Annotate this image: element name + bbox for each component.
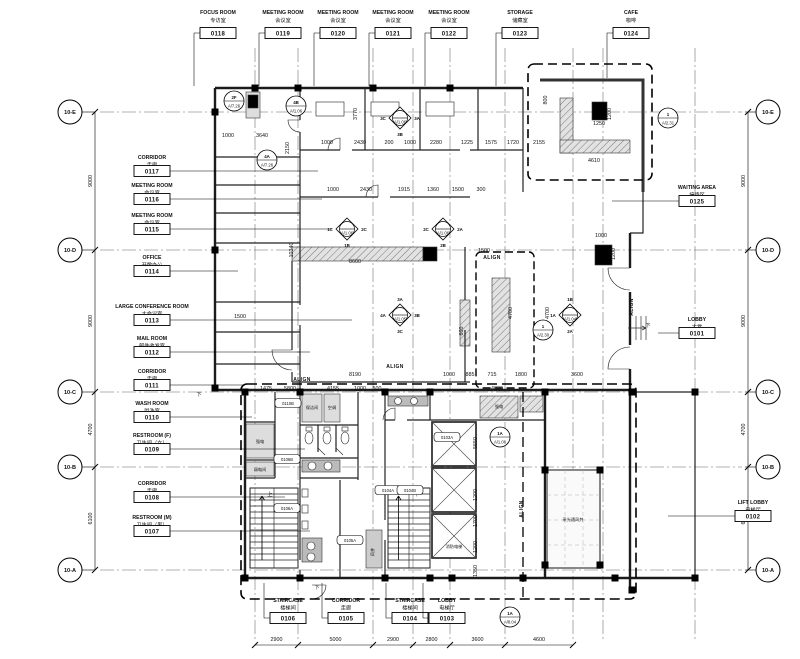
pantry-equipment (248, 95, 258, 108)
room-name-cn: 咖啡 (626, 16, 636, 24)
marker-sheet: A/1.06 (341, 231, 354, 236)
marker-sheet: A/1.06 (494, 440, 507, 445)
leader-line (314, 33, 320, 86)
stair-direction-arrow (260, 496, 265, 560)
leader-line (264, 583, 270, 618)
room-name: LOBBY (688, 317, 707, 323)
room-number: 0102 (746, 515, 761, 521)
dim-label: 800 (543, 96, 549, 105)
room-name: RESTROOM (M) (132, 515, 171, 521)
dim-label: 885 (466, 372, 475, 378)
dim-label: 3640 (256, 133, 268, 139)
room-name: STORAGE (507, 10, 533, 16)
room-number: 0112 (145, 351, 160, 357)
cafe-counter-horizontal (560, 140, 630, 153)
column (542, 389, 549, 396)
dim-label: 9000 (88, 315, 94, 327)
core-room-label: 空调 (328, 404, 336, 411)
down-note: 下 (645, 322, 650, 329)
core-room-label: 采光通风井 (563, 516, 584, 523)
toilet-icon (323, 432, 331, 444)
floor-plan-sheet: 9000900047006100900090004700610029005000… (0, 0, 800, 659)
marker-sheet: A/1.06 (394, 120, 407, 125)
room-number: 0113 (145, 319, 160, 325)
room-name-cn: 楼梯间 (280, 604, 296, 612)
dim-label: 4820 (491, 386, 503, 392)
dim-label: 5800 (284, 386, 296, 392)
room-name: STAIRCASE (273, 598, 303, 604)
room-name: CORRIDOR (138, 155, 166, 161)
room-number: 0124 (624, 32, 639, 38)
align-note: ALIGN (519, 500, 525, 518)
interior-elevation-marker: A/1.062B2C2A (423, 218, 463, 248)
grid-bubble-label: 10-A (64, 568, 76, 574)
room-name-cn: 储藏室 (512, 16, 528, 24)
marker-side-label: 3B (414, 313, 420, 318)
room-name: CORRIDOR (332, 598, 360, 604)
core-room-label: 弱电间 (254, 466, 267, 473)
dim-label: 5000 (330, 637, 342, 643)
door-tag: 0106A (281, 506, 293, 511)
column (520, 575, 527, 582)
dim-label: 1200 (611, 248, 617, 260)
column (427, 389, 434, 396)
room-name: MAIL ROOM (137, 336, 167, 342)
sink-icon (308, 462, 316, 470)
room-number: 0115 (145, 228, 160, 234)
dim-label: 10340 (289, 243, 295, 258)
column (629, 587, 636, 594)
marker-side-label: 3C (397, 329, 403, 334)
door-swing (272, 350, 292, 370)
dim-label: 5650 (473, 437, 479, 449)
dim-label: 1000 (354, 386, 366, 392)
leader-line (425, 33, 431, 86)
room-number: 0121 (386, 32, 401, 38)
room-number: 0123 (513, 32, 528, 38)
column (612, 575, 619, 582)
marker-sheet: A/7.26 (261, 163, 274, 168)
column (542, 467, 549, 474)
room-number: 0117 (145, 170, 160, 176)
align-note: ALIGN (483, 255, 501, 261)
marker-ref: 4B (293, 100, 299, 105)
column (692, 575, 699, 582)
dim-label: 9000 (741, 315, 747, 327)
marker-ref: 4A (264, 154, 270, 159)
section-marker: 2FA/7.26 (224, 91, 244, 111)
room-name: WASH ROOM (135, 401, 168, 407)
column (597, 562, 604, 569)
dim-label: 9000 (741, 175, 747, 187)
section-marker: 1A/2.31 (658, 108, 678, 128)
room-number: 0116 (145, 198, 160, 204)
door-tag: 0104B (404, 488, 416, 493)
meeting-table (316, 102, 344, 116)
dim-label: 1200 (473, 541, 479, 553)
stair-direction-arrow (396, 496, 401, 560)
dim-label: 1500 (452, 187, 464, 193)
room-name-cn: 走廊 (341, 604, 351, 612)
marker-side-label: 2A (457, 227, 463, 232)
marker-side-label: 3B (397, 132, 403, 137)
room-number: 0122 (442, 32, 457, 38)
dim-label: 2900 (271, 637, 283, 643)
dim-label: 500 (373, 386, 382, 392)
grid-bubble-label: 10-C (64, 390, 76, 396)
interior-elevation-marker: A/1.061B1C2C (327, 218, 367, 248)
down-note: 下 (196, 391, 201, 398)
marker-side-label: 1A (550, 313, 556, 318)
marker-side-label: 2C (423, 227, 429, 232)
room-name: CAFE (624, 10, 639, 16)
room-name: MEETING ROOM (428, 10, 469, 16)
structural-grid (100, 48, 742, 640)
room-number: 0107 (145, 530, 160, 536)
dim-label: 715 (488, 372, 497, 378)
dim-label: 1915 (398, 187, 410, 193)
column (597, 467, 604, 474)
meeting-table (426, 102, 454, 116)
leader-line (496, 33, 502, 86)
dim-label: 1350 (473, 565, 479, 577)
marker-sheet: A/1.06 (437, 231, 450, 236)
sink-icon (395, 398, 402, 405)
dim-label: 1575 (485, 140, 497, 146)
marker-ref: 1A (497, 431, 503, 436)
grid-bubble-label: 10-B (762, 465, 774, 471)
room-name-cn: 会议室 (330, 16, 346, 24)
floor-plan-canvas: 9000900047006100900090004700610029005000… (0, 0, 800, 659)
room-name-cn: 专访室 (210, 16, 226, 24)
marker-side-label: 4A (380, 313, 386, 318)
dim-label: 3770 (353, 108, 359, 120)
room-name: WAITING AREA (678, 185, 716, 191)
room-number: 0120 (331, 32, 346, 38)
align-note: ALIGN (293, 377, 311, 383)
room-number: 0106 (281, 617, 296, 623)
dim-label: 2155 (533, 140, 545, 146)
grid-bubble-label: 10-A (762, 568, 774, 574)
dim-label: 9000 (88, 175, 94, 187)
marker-sheet: A/1.04 (564, 317, 577, 322)
room-name: MEETING ROOM (131, 213, 172, 219)
room-name-cn: 楼梯间 (402, 604, 418, 612)
door-swing (608, 268, 630, 290)
dim-label: 1500 (234, 314, 246, 320)
dim-label: 1250 (593, 121, 605, 127)
room-name: MEETING ROOM (317, 10, 358, 16)
section-marker: 1A/2.30 (533, 320, 553, 340)
grid-bubble-label: 10-D (762, 248, 774, 254)
dim-label: 3600 (571, 372, 583, 378)
marker-sheet: A/2.30 (537, 333, 550, 338)
room-name: OFFICE (142, 255, 162, 261)
room-name: RESTROOM (F) (133, 433, 171, 439)
room-number: 0118 (211, 32, 226, 38)
leader-line (369, 33, 375, 86)
dim-label: 2430 (354, 140, 366, 146)
toilet-tank (342, 427, 348, 431)
room-name: MEETING ROOM (262, 10, 303, 16)
grid-bubble-label: 10-E (762, 110, 774, 116)
column (447, 85, 454, 92)
dim-label: 2150 (285, 142, 291, 154)
leader-line (322, 583, 328, 618)
room-number: 0103 (440, 617, 455, 623)
room-number: 0108 (145, 496, 160, 502)
waiting-area-wall (540, 80, 643, 192)
dim-label: 1200 (607, 108, 613, 120)
interior-elevation-marker: A/1.053A3C4A3B (380, 297, 420, 334)
room-name: MEETING ROOM (131, 183, 172, 189)
leader-line (607, 33, 613, 78)
dim-label: 2430 (360, 187, 372, 193)
marker-side-label: 2C (361, 227, 367, 232)
leader-line (194, 33, 200, 86)
column (692, 389, 699, 396)
column (297, 575, 304, 582)
dim-label: 4155 (327, 386, 339, 392)
column (212, 109, 219, 116)
room-number: 0101 (690, 332, 705, 338)
dim-label: 2900 (387, 637, 399, 643)
core-room-label: 保洁间 (306, 404, 319, 411)
dim-label: 4610 (588, 158, 600, 164)
room-number: 0109 (145, 448, 160, 454)
leader-line (386, 583, 392, 618)
column (370, 85, 377, 92)
dim-label: 4700 (741, 424, 747, 436)
align-note: ALIGN (629, 298, 635, 316)
core-room-label: 强电 (495, 403, 504, 410)
column (629, 389, 636, 396)
grid-bubble-label: 10-E (64, 110, 76, 116)
dim-label: 2800 (426, 637, 438, 643)
marker-ref: 1A (507, 611, 513, 616)
core-room-label: 强电 (256, 438, 265, 445)
dim-label: 8600 (349, 259, 361, 265)
column (252, 85, 259, 92)
stall-door-leaf (318, 448, 343, 455)
down-note: 下 (314, 584, 319, 591)
column (242, 389, 249, 396)
dim-label: 1000 (222, 133, 234, 139)
leader-line (259, 33, 265, 86)
dim-label: 6100 (88, 513, 94, 525)
room-name: CORRIDOR (138, 369, 166, 375)
column (295, 85, 302, 92)
marker-side-label: 1B (567, 297, 573, 302)
dim-label: 4700 (508, 307, 514, 319)
dim-label: 1700 (473, 515, 479, 527)
dim-label: 1720 (507, 140, 519, 146)
washroom-counter (388, 396, 428, 406)
core-room-label: 消防电梯 (446, 543, 463, 550)
sink-icon (307, 542, 315, 550)
core-room-label: 风井 (369, 548, 376, 556)
toilet-tank (306, 427, 312, 431)
dim-label: 3600 (472, 637, 484, 643)
column (212, 385, 219, 392)
dim-label: 1500 (478, 248, 490, 254)
dim-label: 1225 (461, 140, 473, 146)
dim-label: 4700 (88, 424, 94, 436)
room-name-cn: 会议室 (441, 16, 457, 24)
dim-label: 1800 (515, 372, 527, 378)
column (382, 389, 389, 396)
sink-icon (307, 553, 315, 561)
door-swing (608, 347, 630, 369)
room-name-cn: 会议室 (385, 16, 401, 24)
toilet-icon (305, 432, 313, 444)
column (542, 562, 549, 569)
grid-bubble-label: 10-D (64, 248, 76, 254)
marker-side-label: 2B (440, 243, 446, 248)
column (382, 575, 389, 582)
marker-ref: 2F (231, 95, 236, 100)
marker-sheet: A/7.26 (228, 104, 241, 109)
section-marker: 4AA/7.26 (257, 150, 277, 170)
column (297, 389, 304, 396)
dim-label: 600 (459, 327, 465, 336)
door-tag: 0104A (382, 488, 394, 493)
room-name-cn: 会议室 (275, 16, 291, 24)
dim-label: 4600 (533, 637, 545, 643)
grid-bubble-label: 10-B (64, 465, 76, 471)
column (242, 575, 249, 582)
marker-side-label: 2A (567, 329, 573, 334)
dim-label: 1000 (321, 140, 333, 146)
dim-label: 1200 (473, 489, 479, 501)
room-name: LOBBY (438, 598, 457, 604)
dim-label: 1000 (595, 233, 607, 239)
grid-bubble-label: 10-C (762, 390, 774, 396)
room-name-cn: 电梯厅 (439, 604, 455, 612)
column (427, 575, 434, 582)
align-note: ALIGN (386, 364, 404, 370)
urinal-icon (302, 505, 308, 513)
room-name: FOCUS ROOM (200, 10, 236, 16)
sink-icon (324, 462, 332, 470)
interior-elevation-marker: A/1.041B2A1A (550, 297, 581, 334)
room-number: 0104 (403, 617, 418, 623)
room-number: 0110 (145, 416, 160, 422)
section-marker: 1AA/8.04 (500, 607, 520, 627)
dim-label: 1000 (327, 187, 339, 193)
room-number: 0119 (276, 32, 291, 38)
room-number: 0114 (145, 270, 160, 276)
marker-side-label: 3C (380, 116, 386, 121)
section-marker: 4BA/1.06 (286, 96, 306, 116)
toilet-icon (341, 432, 349, 444)
room-name: STAIRCASE (395, 598, 425, 604)
marker-side-label: 1C (327, 227, 333, 232)
dim-label: 300 (477, 187, 486, 193)
lobby-column (595, 245, 612, 265)
column (212, 247, 219, 254)
marker-sheet: A/8.04 (504, 620, 517, 625)
dimension-layer: 9000900047006100900090004700610029005000… (58, 96, 780, 649)
dim-label: 200 (385, 140, 394, 146)
room-number: 0105 (339, 617, 354, 623)
toilet-tank (324, 427, 330, 431)
door-tag: 0106B (281, 457, 293, 462)
room-name: LIFT LOBBY (738, 500, 769, 506)
dim-label: 8190 (349, 372, 361, 378)
room-number: 0125 (690, 200, 705, 206)
room-number: 0111 (145, 384, 159, 390)
section-marker: 1AA/1.06 (490, 427, 510, 447)
dim-label: 1000 (443, 372, 455, 378)
room-name: MEETING ROOM (372, 10, 413, 16)
dim-label: 1475 (260, 386, 272, 392)
room-name: LARGE CONFERENCE ROOM (115, 304, 189, 310)
dim-label: 2280 (430, 140, 442, 146)
marker-side-label: 3A (414, 116, 420, 121)
marker-sheet: A/1.06 (290, 109, 303, 114)
wall-solid-segment (423, 247, 437, 261)
door-tag: 0110B (282, 401, 294, 406)
sink-icon (411, 398, 418, 405)
room-name: CORRIDOR (138, 481, 166, 487)
cafe-equipment (592, 102, 607, 120)
dim-label: 1000 (404, 140, 416, 146)
marker-sheet: A/1.05 (394, 317, 407, 322)
door-tag: 0105A (344, 538, 356, 543)
urinal-icon (302, 521, 308, 529)
column (449, 575, 456, 582)
dim-label: 1360 (427, 187, 439, 193)
marker-side-label: 1B (344, 243, 350, 248)
marker-side-label: 3A (397, 297, 403, 302)
door-tag: 0103A (441, 435, 453, 440)
marker-sheet: A/2.31 (662, 121, 675, 126)
urinal-icon (302, 489, 308, 497)
